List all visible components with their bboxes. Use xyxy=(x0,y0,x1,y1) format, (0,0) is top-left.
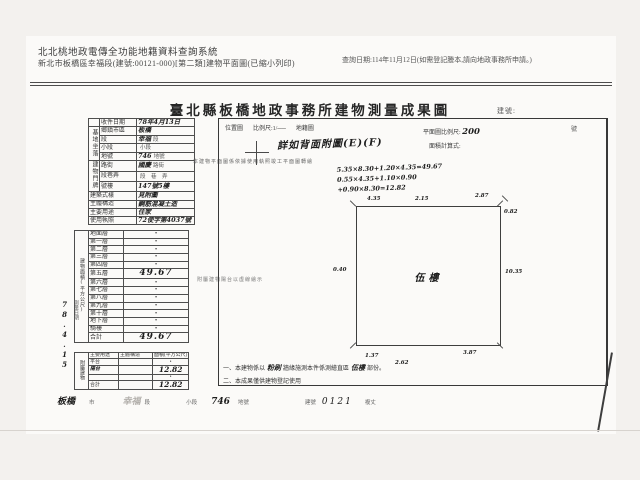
dimension-label: 0.82 xyxy=(504,209,517,215)
plan-scale-row: 平面圖比例尺: 200 xyxy=(423,127,480,137)
floor-group-label: 建物面積(平方公尺) xyxy=(79,258,84,313)
location-map-label: 位置圖 xyxy=(225,123,243,132)
note-line-1: 一、本建物係以粉刷牆緣施測本件係測繪直區伍樓部份。 xyxy=(223,363,385,373)
table-row: 主體構造 鋼筋混凝土造 xyxy=(89,200,195,208)
floor-value: • xyxy=(124,310,189,318)
plan-drawing-panel: 位置圖 比例尺:1/── 地籍圖 號 詳如背面附圖(E)(F) 平面圖比例尺: … xyxy=(218,118,608,386)
field-label: 號樓 xyxy=(100,181,137,191)
floor-value: • xyxy=(124,302,189,310)
table-row: 第三層• xyxy=(75,254,189,262)
survey-date-value: 78.4.15 xyxy=(60,300,69,370)
handwritten-word: 粉刷 xyxy=(267,363,281,372)
dimension-label: 10.35 xyxy=(505,269,522,275)
table-row: 小段 小段 xyxy=(89,144,195,153)
floor-label: 地下層 xyxy=(89,317,124,325)
field-value: 72使字第4037號 xyxy=(138,217,191,225)
attachment-structure xyxy=(119,365,153,374)
attachment-group-label: 附屬建物 xyxy=(79,360,84,380)
field-label: 使用執照 xyxy=(89,217,137,225)
footer-subsection-label: 小段 xyxy=(186,398,197,406)
attachment-table: 附屬建物 主要用途 主體構造 面積(平方公尺) 平台 • 陽台 12.82 • … xyxy=(74,352,189,390)
attachment-structure xyxy=(119,381,153,390)
field-value: 鋼筋混凝土造 xyxy=(138,200,177,208)
footer-lot-hand: 746 xyxy=(211,397,230,407)
table-row: 第九層• xyxy=(75,302,189,310)
floor-value: • xyxy=(124,317,189,325)
table-row: 合計49.67 xyxy=(75,333,189,343)
footer-section-hand: 幸福 xyxy=(123,394,141,407)
query-date: 查詢日期:114年11月12日(如需登記謄本,請向地政事務所申請。) xyxy=(342,55,532,65)
floor-label: 第四層 xyxy=(89,261,124,269)
table-row: 地下層• xyxy=(75,317,189,325)
system-title: 北北桃地政電傳全功能地籍資料查詢系統 xyxy=(38,44,218,58)
dimension-label: 0.40 xyxy=(333,267,346,273)
field-value: 147號5樓 xyxy=(138,182,169,190)
site-group-label: 基地坐落 xyxy=(91,129,97,157)
floor-area-table: 建物面積(平方公尺) 地面層 • 第一層• 第二層• 第三層• 第四層• 第五層… xyxy=(74,230,189,343)
table-row: 建物門牌 路街 國慶路街 xyxy=(89,161,195,171)
table-row: 第十層• xyxy=(75,310,189,318)
table-row: 號樓 147號5樓 xyxy=(89,181,195,191)
column-header: 面積(平方公尺) xyxy=(153,353,189,359)
footer-building-no-value: 0121 xyxy=(322,397,353,407)
table-row: 段巷弄 段 巷 弄 xyxy=(89,171,195,181)
cadastral-map-label: 地籍圖 xyxy=(296,123,314,132)
dimension-label: 2.87 xyxy=(475,193,488,199)
floor-label: 第一層 xyxy=(89,238,124,246)
table-row: 段 幸福段 xyxy=(89,135,195,144)
field-value: 板橋 xyxy=(138,127,151,135)
floor-label: 合計 xyxy=(89,333,124,343)
dimension-label: 4.35 xyxy=(367,196,380,202)
dimension-label: 2.15 xyxy=(415,196,428,202)
system-subtitle: 新北市板橋區幸福段(建號:00121-000)[第二類]建物平面圖(已縮小列印) xyxy=(38,58,295,69)
floor-label: 第二層 xyxy=(89,246,124,254)
floor-label: 第六層 xyxy=(89,279,124,287)
site-address-table: 收件日期 78年4月13日 基地坐落 鄉鎮市區 板橋 段 幸福段 小段 小段 地… xyxy=(88,118,195,225)
floor-value: • xyxy=(124,287,189,295)
building-outline: 伍樓 xyxy=(356,206,501,346)
field-label: 鄉鎮市區 xyxy=(100,127,137,136)
number-label: 號 xyxy=(571,124,577,133)
floor-value: • xyxy=(124,325,189,333)
floor-value: • xyxy=(124,261,189,269)
table-row: 附屬建物 主要用途 主體構造 面積(平方公尺) xyxy=(75,353,189,359)
floor-label: 第八層 xyxy=(89,294,124,302)
area-calc-label: 面積計算式: xyxy=(429,141,461,150)
table-row: 地號 746地號 xyxy=(89,152,195,161)
field-label: 主體構造 xyxy=(89,200,137,208)
field-value: 幸福 xyxy=(138,135,151,143)
floor-total-value: 49.67 xyxy=(139,333,172,343)
table-row: 騎樓• xyxy=(75,325,189,333)
attachment-total-label: 合計 xyxy=(89,381,119,390)
table-row: 使用執照 72使字第4037號 xyxy=(89,217,195,225)
field-label: 路街 xyxy=(100,161,137,171)
footer-city-hand: 板橋 xyxy=(57,394,75,407)
table-row: 主要用途 住家 xyxy=(89,208,195,216)
footer-building-no-label: 建號 xyxy=(305,398,316,406)
field-label: 小段 xyxy=(100,144,137,153)
floor-value: • xyxy=(124,238,189,246)
survey-date-label: 測量日期 xyxy=(72,300,79,320)
attachment-area: 12.82 xyxy=(159,365,183,374)
footer-lot-label: 地號 xyxy=(238,398,249,406)
field-label: 段 xyxy=(100,135,137,144)
handwritten-area-calculation: 5.35×8.30+1.20×4.35=49.67 0.55×4.35+1.10… xyxy=(337,161,443,195)
floor-value: • xyxy=(124,279,189,287)
handwritten-reference-note: 詳如背面附圖(E)(F) xyxy=(277,133,383,152)
header-divider xyxy=(30,82,612,86)
dimension-label: 2.62 xyxy=(395,360,408,366)
attachment-use: 陽台 xyxy=(90,366,100,372)
field-label: 地號 xyxy=(100,152,137,161)
table-row: 第二層• xyxy=(75,246,189,254)
corner-tick xyxy=(350,200,356,206)
table-row: 合計 12.82 xyxy=(75,381,189,390)
field-value: 國慶 xyxy=(138,161,151,169)
floor-label: 第七層 xyxy=(89,287,124,295)
table-row: 陽台 12.82 xyxy=(75,365,189,374)
document-title: 臺北縣板橋地政事務所建物測量成果圖 xyxy=(120,99,500,119)
plan-scale-label: 平面圖比例尺: xyxy=(423,130,461,136)
dimension-label: 3.87 xyxy=(463,350,476,356)
building-number-label: 建號: xyxy=(497,106,516,116)
floor-label: 地面層 xyxy=(89,231,124,239)
field-label: 段巷弄 xyxy=(100,171,137,181)
table-row: 第八層• xyxy=(75,294,189,302)
footer-section-label: 段 xyxy=(145,398,151,406)
table-row: 收件日期 78年4月13日 xyxy=(89,119,195,127)
field-label: 主要用途 xyxy=(89,208,137,216)
location-scale-row: 位置圖 比例尺:1/── 地籍圖 xyxy=(225,123,314,132)
table-row: 第五層49.67 xyxy=(75,269,189,279)
footer-city-label: 市 xyxy=(89,398,95,406)
table-row: 第一層• xyxy=(75,238,189,246)
floor-value: • xyxy=(124,246,189,254)
floor-label: 騎樓 xyxy=(89,325,124,333)
location-scale-label: 比例尺:1/── xyxy=(253,123,286,132)
address-group-label: 建物門牌 xyxy=(91,161,97,189)
field-label: 建築式樣 xyxy=(89,192,137,200)
table-row: 第四層• xyxy=(75,261,189,269)
floor-value: • xyxy=(124,294,189,302)
attachment-total-value: 12.82 xyxy=(159,381,183,390)
field-value: 見附圖 xyxy=(138,192,158,200)
intake-date-label: 收件日期 xyxy=(100,119,137,127)
page-bottom-edge xyxy=(0,430,640,431)
floor-label: 第十層 xyxy=(89,310,124,318)
table-row: 建物面積(平方公尺) 地面層 • xyxy=(75,231,189,239)
floor-value: 49.67 xyxy=(139,269,172,279)
note-line-2: 二、本成果僅供建物登記使用 xyxy=(223,376,301,385)
floor-value: • xyxy=(124,254,189,262)
dimension-label: 1.37 xyxy=(365,353,378,359)
plan-scale-value: 200 xyxy=(462,127,480,137)
table-row: 第七層• xyxy=(75,287,189,295)
field-value: 746 xyxy=(138,152,152,160)
footer-parcel-line: 板橋 市 幸福 段 小段 746 地號 建號 0121 複丈 xyxy=(57,394,376,407)
intake-date-value: 78年4月13日 xyxy=(138,119,180,127)
north-cross-icon xyxy=(245,141,269,165)
floor-value: • xyxy=(124,231,189,239)
floor-label: 第五層 xyxy=(89,269,124,279)
field-value: 住家 xyxy=(138,208,151,216)
handwritten-word: 伍樓 xyxy=(351,363,365,372)
table-row: 基地坐落 鄉鎮市區 板橋 xyxy=(89,127,195,136)
table-row: 建築式樣 見附圖 xyxy=(89,192,195,200)
footer-end-label: 複丈 xyxy=(365,398,376,406)
floor-label: 第三層 xyxy=(89,254,124,262)
floor-plan-label: 伍樓 xyxy=(415,269,443,284)
table-row: 第六層• xyxy=(75,279,189,287)
floor-label: 第九層 xyxy=(89,302,124,310)
